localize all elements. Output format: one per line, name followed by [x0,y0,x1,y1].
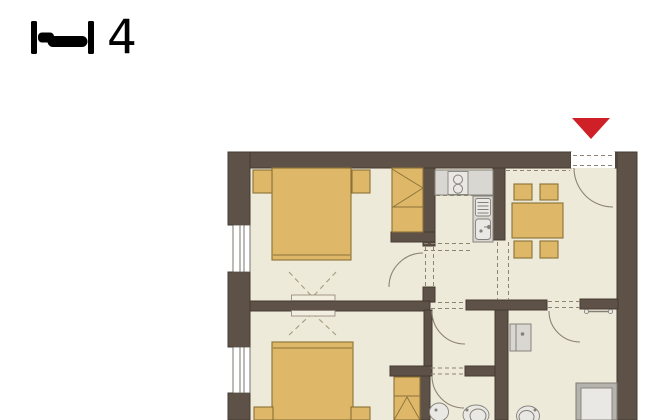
floor-plan: 4 [0,0,650,420]
wall-wc-top-stub [465,366,497,376]
wall-wardrobe2-top [390,366,432,376]
bed-icon-footboard [88,21,94,54]
shower-tray [581,388,612,420]
wall-kitchen-dining [493,168,505,240]
chair-4 [540,241,558,258]
wall-top-left [230,152,571,168]
washbasin-wc [430,403,449,420]
chair-1 [514,184,532,200]
wall-left-pillar-1 [228,152,250,225]
chair-3 [514,241,532,258]
wall-divider-mid [466,300,547,310]
wardrobe-1 [392,168,423,232]
nightstand-2a [254,407,273,420]
capacity-badge: 4 [31,10,137,65]
entrance-arrow-icon [572,118,610,139]
wall-left-pillar-3 [228,393,250,420]
wall-divider-right [580,299,618,309]
wall-wc-shower-divider [495,310,508,420]
window-bedroom2 [233,347,250,393]
wall-wardrobe1-niche [391,232,435,242]
wall-divider-left [250,301,430,311]
nightstand-1b [352,170,370,193]
double-bed-1 [272,168,351,260]
floor-plan-page: 4 [0,0,650,420]
double-bed-2 [272,342,353,420]
entrance-door-opening [571,152,615,168]
bed-icon-body [48,36,88,47]
sink-drain [479,229,482,232]
dining-table [512,203,563,238]
washbasin-cabinet [510,324,531,351]
window-bedroom1 [233,225,250,272]
wall-wc-left [420,376,430,420]
bed-icon [31,21,94,54]
wall-bedroom1-right-stub [423,287,435,302]
bed-icon-headboard [31,21,37,54]
wall-right [617,152,637,420]
nightstand-1a [253,170,272,193]
nightstand-2b [351,407,370,420]
wall-left-pillar-2 [228,272,250,347]
sink-bowl [476,219,491,240]
bed-count: 4 [107,10,137,65]
chair-2 [540,184,558,200]
washbasin-faucet [521,332,525,336]
